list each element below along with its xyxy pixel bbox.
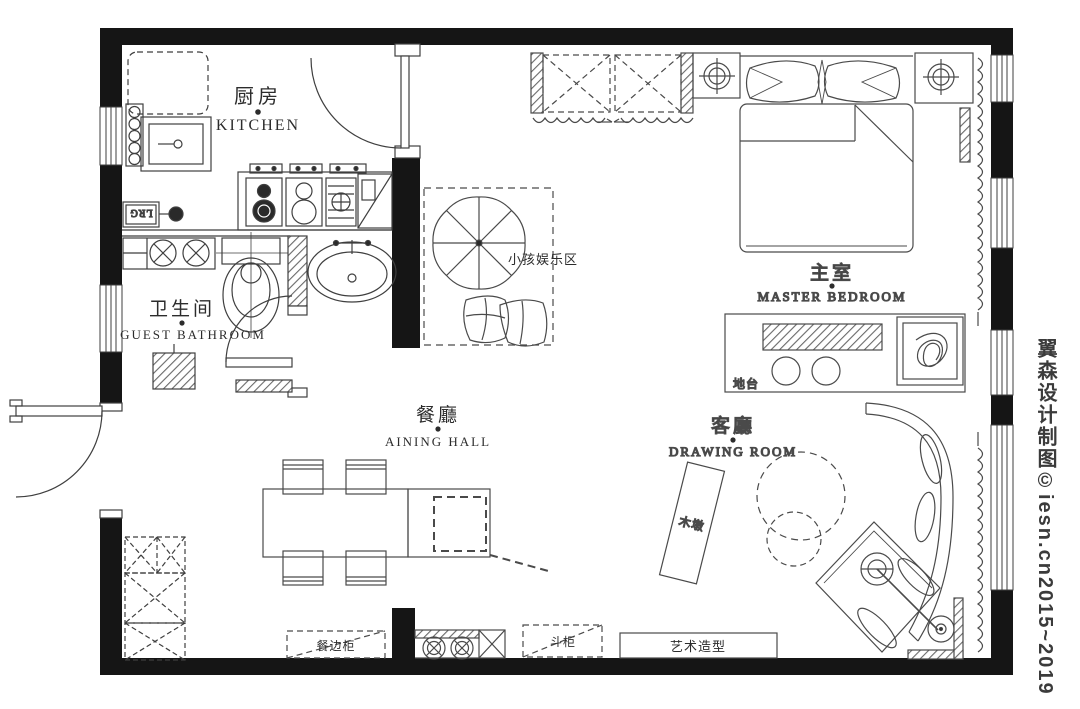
window-left-2 [100,285,122,352]
hinge-icon [10,400,22,406]
master-bedroom-area: 主室 MASTER BEDROOM 地台 [531,53,973,392]
stove-counter-icon [415,630,479,659]
kitchen-area: LRG [123,44,420,230]
cabinet-icon [358,174,392,228]
label-dot [435,426,440,431]
toilet-icon [216,232,288,338]
curtain-icon [533,118,605,123]
wall-right [991,248,1013,330]
pillow-icon [825,61,900,102]
door-frame [395,44,420,56]
curtains-right [978,58,983,652]
chest-of-drawers-label: 斗柜 [550,635,576,649]
sofa-icon [816,403,953,653]
wall-right [991,102,1013,178]
kitchen-door-swing-arc [311,58,401,148]
fridge-icon [128,52,208,114]
dining-hall-label-zh: 餐廳 [416,404,460,426]
wall-left [100,165,122,285]
curtain-icon [621,118,693,123]
wall-pier [960,108,970,162]
wall-right [991,395,1013,425]
wall-bottom [100,658,1013,675]
dining-hall-label-en: AINING HALL [385,434,491,449]
kitchen-label-zh: 厨房 [234,85,282,108]
label-dot [730,437,735,442]
bathroom-door-leaf [226,358,292,367]
guest-bathroom-label-zh: 卫生间 [149,298,215,320]
art-feature: 艺术造型 [620,633,777,658]
cushion-icon [893,553,939,600]
appliance-label: LRG [130,207,153,218]
chest-of-drawers: 斗柜 [523,625,602,657]
knob-icon [169,207,183,221]
label-dot [829,283,834,288]
record-player-icon [928,616,954,642]
burner-counter-icon [123,238,215,269]
nightstand-icon [915,53,973,103]
kitchen-sink-icon [141,117,211,171]
cabinet-x-icon [479,630,505,658]
wall-bathroom-sill [236,380,292,392]
drawing-room-label-en: DRAWING ROOM [669,444,797,459]
platform: 地台 [725,314,965,392]
floor-plan-page: LRG [0,0,1080,709]
curtain-icon [978,58,983,310]
drawing-room-label-zh: 客廳 [711,415,755,437]
shoe-cabinet-icons [125,537,185,660]
kids-play-area: 小孩娱乐区 [424,188,578,346]
kitchen-counter [238,164,392,230]
dining-chair [346,551,386,585]
curtain-icon [978,448,983,652]
wall-top [100,28,1013,45]
floor-plan-svg: LRG [0,0,1080,709]
kitchen-label-en: KITCHEN [216,117,300,134]
windows [100,55,1013,590]
drawing-room-area: 客廳 DRAWING ROOM 木墩 [660,403,953,653]
round-rug [757,452,845,540]
heater-icon [153,344,195,389]
master-bedroom-label-en: MASTER BEDROOM [758,289,907,304]
designer-watermark: 翼森设计制图©iesn.cn2015~2019 [1034,338,1058,696]
guest-bathroom-label-en: GUEST BATHROOM [120,327,266,342]
master-bedroom-label-zh: 主室 [810,262,854,284]
wall-right [991,28,1013,55]
plant-icon [897,317,963,385]
bottom-furniture: 餐边柜 斗柜 艺术造型 [287,598,963,659]
entry-door-swing-arc [16,411,102,497]
wardrobe-icon [531,53,693,123]
wall-kitchen-column [392,158,420,348]
door-frame [100,510,122,518]
kitchen-door-leaf [401,56,409,148]
wall-left [100,518,122,658]
umbrella-icon [433,197,525,289]
wood-stump-label: 木墩 [677,514,706,534]
door-frame [100,403,122,411]
wall-right [991,590,1013,675]
art-feature-label: 艺术造型 [670,639,726,654]
window-right-1 [991,55,1013,102]
dining-table [263,489,552,572]
wall-left [100,352,122,403]
kids-play-area-label: 小孩娱乐区 [508,252,578,267]
wash-basin-icon [308,240,396,302]
window-right-2 [991,178,1013,248]
hinge-icon [10,416,22,422]
sideboard: 餐边柜 [287,631,385,658]
entry-door-leaf [16,406,102,416]
door-frame [288,306,307,315]
wood-stump: 木墩 [660,462,725,584]
cushion-icon [916,433,946,486]
gas-stove-icon [326,178,356,226]
sideboard-label: 餐边柜 [316,638,355,653]
wall-stub-bottom [392,608,415,658]
window-left-1 [100,107,122,165]
cooktop-icon [246,178,282,226]
label-dot [179,320,184,325]
dining-chair [283,551,323,585]
cushion-icon [912,491,938,543]
wall-left [100,28,122,107]
window-right-3 [991,330,1013,395]
nightstand-icon [693,53,740,98]
window-right-4 [991,425,1013,590]
label-dot [255,109,261,115]
platform-label: 地台 [733,376,759,391]
entrance-area [10,400,185,660]
dining-area [263,460,552,585]
double-sink-icon [286,178,322,226]
pillow-icon [747,61,820,102]
corner-ledge [954,598,963,659]
appliance-box: LRG [123,202,183,227]
bed-icon [740,56,913,252]
